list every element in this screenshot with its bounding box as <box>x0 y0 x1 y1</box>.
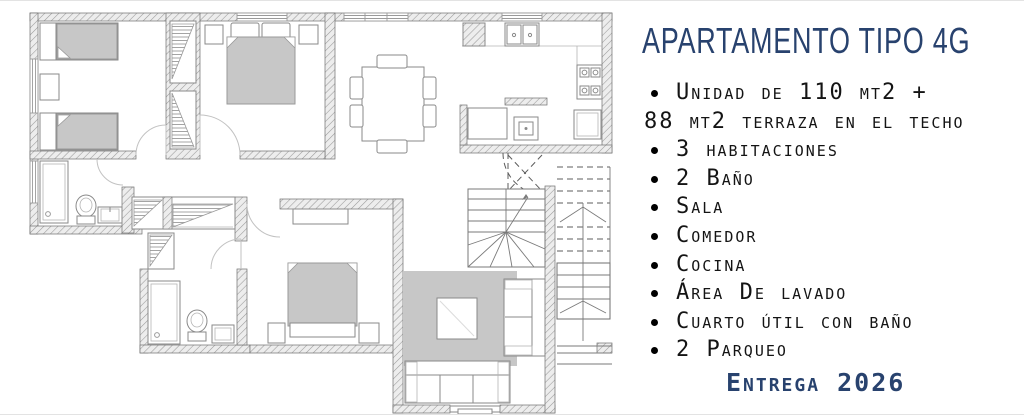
nightstand-icon <box>268 323 285 343</box>
single-bed-icon <box>40 23 118 60</box>
feature-text: 3 habitaciones <box>676 137 839 162</box>
shower-icon <box>148 281 180 344</box>
feature-text: Área De lavado <box>676 280 847 305</box>
bedroom-2 <box>205 23 318 104</box>
info-panel: APARTAMENTO TIPO 4G Unidad de 110 mt2 +8… <box>642 19 1020 397</box>
exterior-stairs-icon <box>557 167 612 364</box>
closet-icon <box>40 74 59 100</box>
feature-item: Sala <box>642 193 1020 222</box>
washer-icon <box>514 117 538 140</box>
feature-item: Cuarto útil con baño <box>642 308 1020 337</box>
hall-closets <box>132 197 235 269</box>
feature-item: Comedor <box>642 222 1020 251</box>
loveseat-icon <box>504 279 545 356</box>
bullet-icon <box>651 347 658 354</box>
feature-text: Sala <box>676 194 724 219</box>
bullet-icon <box>651 204 658 211</box>
apartment-title: APARTAMENTO TIPO 4G <box>642 19 926 63</box>
kitchen-sink-icon <box>505 23 539 46</box>
floor-plan <box>0 1 640 414</box>
feature-item: Unidad de 110 mt2 + <box>642 79 1020 108</box>
feature-item: 2 Parqueo <box>642 336 1020 365</box>
fridge-icon <box>574 110 601 139</box>
bedroom-3 <box>268 209 379 343</box>
feature-text: Cocina <box>676 252 746 277</box>
double-bed-icon <box>288 263 357 337</box>
dining-area <box>350 55 436 153</box>
bullet-icon <box>651 262 658 269</box>
toilet-icon <box>187 310 207 341</box>
pantry-icon <box>463 23 485 46</box>
dining-table-icon <box>362 67 424 141</box>
living-room <box>403 271 545 414</box>
stove-icon <box>577 65 602 99</box>
feature-item: Cocina <box>642 251 1020 280</box>
nightstand-icon <box>205 25 223 44</box>
feature-item: 88 mt2 terraza en el techo <box>642 108 1020 137</box>
dresser-icon <box>293 209 348 224</box>
feature-list: Unidad de 110 mt2 +88 mt2 terraza en el … <box>642 79 1020 365</box>
feature-text: Unidad de 110 mt2 + <box>676 80 928 105</box>
feature-text: 88 mt2 terraza en el techo <box>644 109 965 134</box>
interior-stairs-icon <box>468 189 545 267</box>
bedroom-1 <box>40 23 118 150</box>
apartment-brochure: APARTAMENTO TIPO 4G Unidad de 110 mt2 +8… <box>0 0 1024 415</box>
feature-text: 2 Baño <box>676 166 755 191</box>
bullet-icon <box>651 233 658 240</box>
bullet-icon <box>651 319 658 326</box>
utility-room <box>468 108 538 140</box>
feature-text: Comedor <box>676 223 757 248</box>
toilet-icon <box>76 195 96 224</box>
nightstand-icon <box>359 323 379 343</box>
shower-icon <box>40 161 68 223</box>
feature-text: Cuarto útil con baño <box>676 309 913 334</box>
nightstand-icon <box>299 25 318 44</box>
feature-item: 3 habitaciones <box>642 136 1020 165</box>
feature-item: 2 Baño <box>642 165 1020 194</box>
sofa-icon <box>405 361 510 403</box>
bathroom-1 <box>40 159 123 224</box>
feature-item: Área De lavado <box>642 279 1020 308</box>
bullet-icon <box>651 290 658 297</box>
bathroom-sink-icon <box>212 325 234 343</box>
delivery-year: Entrega 2026 <box>642 368 1020 397</box>
kitchen <box>462 23 602 140</box>
bullet-icon <box>651 90 658 97</box>
coffee-table-icon <box>437 298 477 339</box>
bullet-icon <box>651 147 658 154</box>
single-bed-icon <box>40 113 118 150</box>
feature-text: 2 Parqueo <box>676 337 788 362</box>
double-bed-icon <box>227 23 295 104</box>
bullet-icon <box>651 176 658 183</box>
bathroom-2 <box>148 281 234 344</box>
bathroom-sink-icon <box>98 207 122 223</box>
